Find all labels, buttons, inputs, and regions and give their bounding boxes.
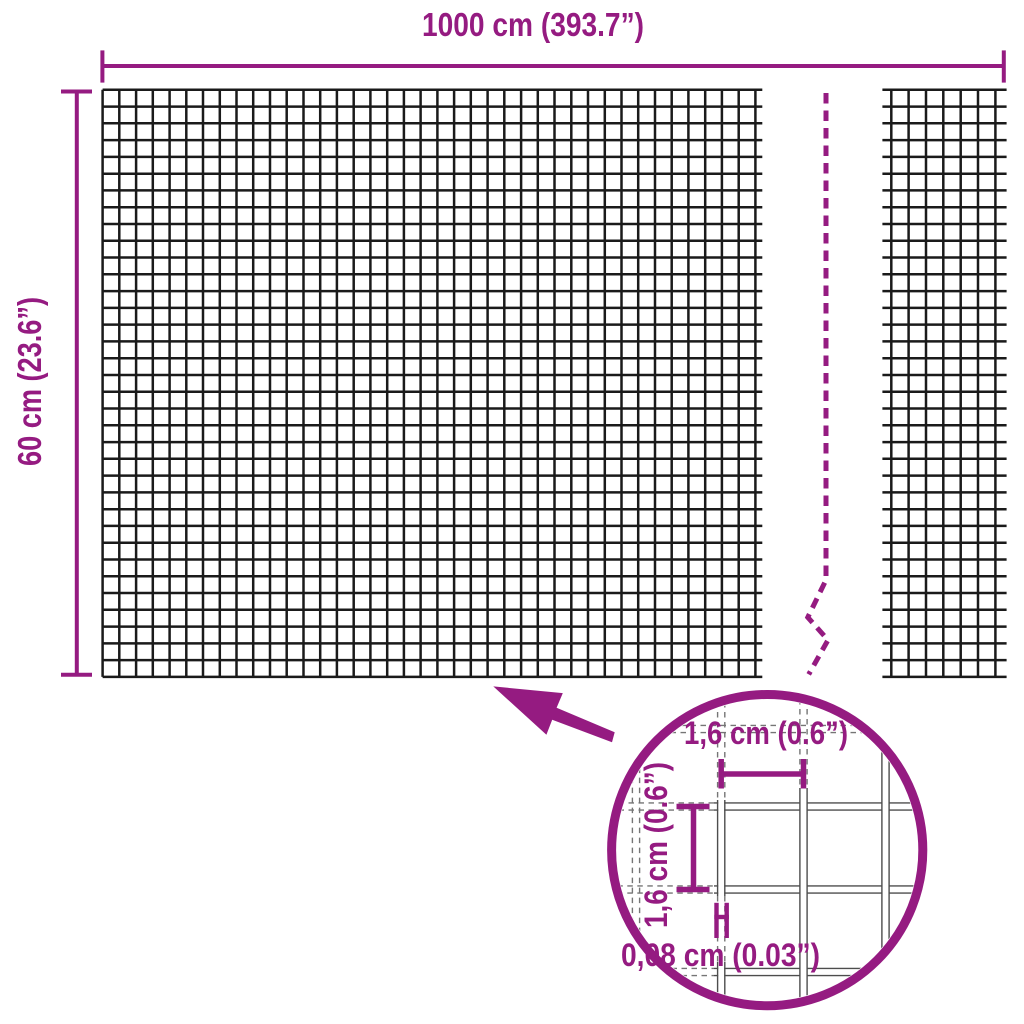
svg-text:0,08 cm (0.03”): 0,08 cm (0.03”)	[621, 937, 820, 973]
svg-text:1000 cm (393.7”): 1000 cm (393.7”)	[422, 6, 644, 43]
svg-text:1,6 cm (0.6”): 1,6 cm (0.6”)	[684, 715, 848, 751]
svg-text:60 cm (23.6”): 60 cm (23.6”)	[11, 297, 48, 466]
svg-text:1,6 cm (0.6”): 1,6 cm (0.6”)	[638, 762, 674, 928]
